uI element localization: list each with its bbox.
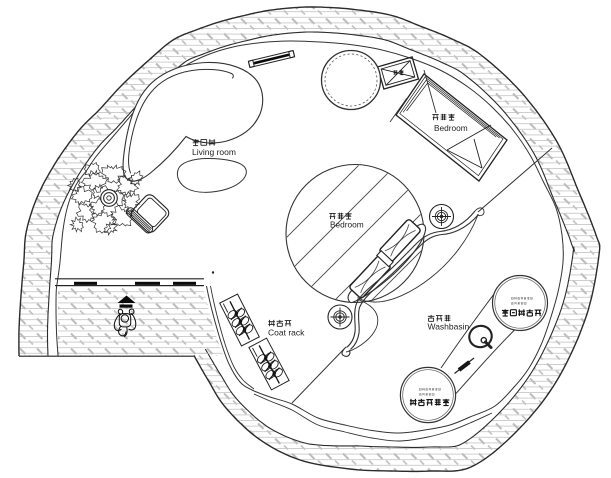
svg-text:Washbasin: Washbasin bbox=[428, 322, 470, 332]
svg-text:Coat rack: Coat rack bbox=[268, 328, 305, 338]
svg-text:Bedroom: Bedroom bbox=[330, 220, 364, 230]
svg-text:Living room: Living room bbox=[192, 147, 236, 157]
svg-text:Bedroom: Bedroom bbox=[434, 123, 468, 133]
